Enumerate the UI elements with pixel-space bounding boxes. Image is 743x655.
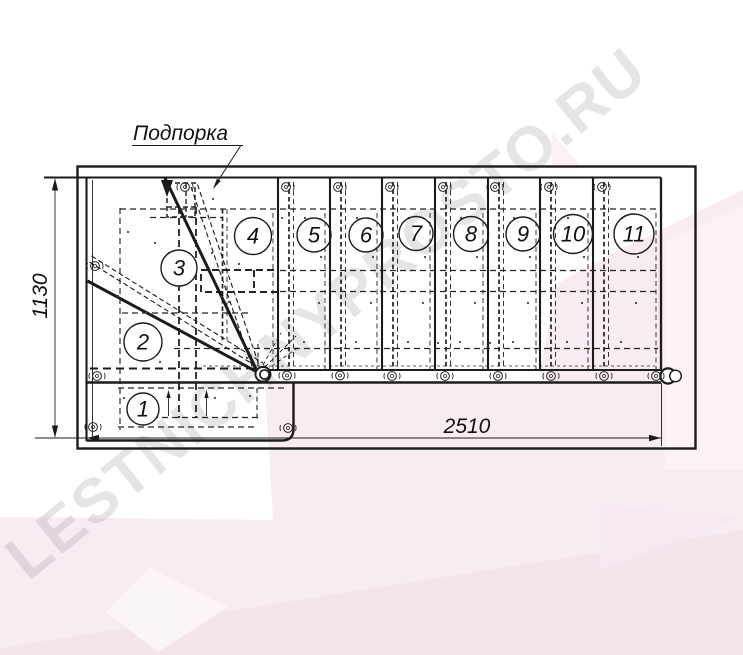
screw-icon — [330, 183, 346, 192]
screw-icon — [87, 262, 103, 271]
background-pink-facets — [0, 133, 743, 655]
round-cap-icon — [670, 370, 682, 382]
svg-text:1: 1 — [137, 397, 149, 422]
svg-text:10: 10 — [561, 222, 586, 247]
step-marker-4: 4 — [235, 218, 272, 255]
dimension-height-value: 1130 — [29, 273, 52, 318]
step-marker-1: 1 — [127, 393, 159, 425]
screw-icon — [177, 183, 193, 192]
screw-icon — [541, 183, 557, 192]
svg-text:11: 11 — [623, 222, 646, 247]
svg-text:6: 6 — [360, 223, 373, 248]
svg-text:2: 2 — [136, 330, 149, 355]
step-marker-3: 3 — [161, 250, 197, 286]
svg-text:9: 9 — [517, 222, 529, 247]
svg-text:8: 8 — [465, 222, 478, 247]
callout-arrowhead — [213, 179, 221, 189]
dimension-width-value: 2510 — [443, 415, 491, 438]
staircase-drawing-page: LESTNICHNYPROSTO.RU — [0, 0, 743, 655]
screw-icon — [594, 183, 610, 192]
staircase-plan-drawing: LESTNICHNYPROSTO.RU — [0, 0, 743, 655]
screw-icon — [382, 183, 398, 192]
dimension-height-1130: 1130 — [29, 179, 58, 438]
callout-podporka: Подпорка — [132, 122, 243, 189]
screw-icon — [89, 372, 105, 381]
svg-text:5: 5 — [308, 223, 321, 248]
step-marker-2: 2 — [124, 323, 162, 361]
step-marker-10: 10 — [554, 215, 593, 254]
screw-icon — [437, 372, 453, 381]
svg-text:4: 4 — [247, 224, 259, 249]
screw-icon — [384, 372, 400, 381]
callout-label: Подпорка — [133, 122, 228, 145]
svg-text:3: 3 — [173, 256, 186, 281]
pink-facet-margin — [665, 205, 743, 470]
svg-text:7: 7 — [410, 221, 423, 246]
step-marker-9: 9 — [506, 217, 540, 251]
step-marker-5: 5 — [297, 218, 331, 252]
screw-icon — [490, 372, 506, 381]
screw-icon — [278, 183, 294, 192]
screw-icon — [332, 371, 348, 380]
